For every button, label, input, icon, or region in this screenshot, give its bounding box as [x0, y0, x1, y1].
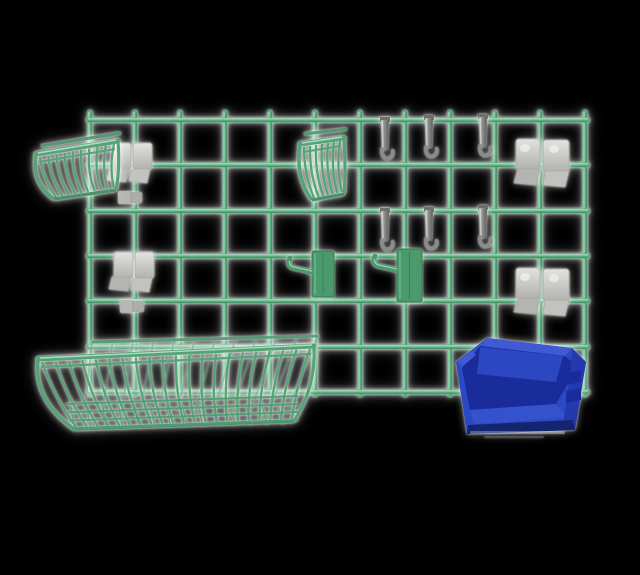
grid-bar-shade	[88, 212, 588, 213]
grid-bar-highlight	[88, 118, 588, 119]
hook-highlight	[481, 209, 482, 235]
clip-flap	[131, 278, 152, 292]
clip-block	[135, 252, 154, 278]
basket-right-cap	[344, 138, 345, 194]
clip-flap	[129, 169, 150, 183]
clip-highlight	[549, 145, 559, 153]
bin-floor-reflection	[470, 431, 565, 434]
clip-block	[114, 252, 133, 278]
product-image-stage	[0, 0, 640, 575]
hook-highlight	[427, 119, 428, 145]
clip-block	[543, 269, 569, 301]
clip-highlight	[520, 144, 530, 152]
clip-highlight	[549, 274, 559, 282]
clip-bit	[130, 192, 142, 203]
grid-bar-shade	[88, 302, 588, 303]
clip-highlight	[520, 273, 530, 281]
hook-highlight	[481, 118, 482, 144]
grid-bar-highlight	[88, 254, 588, 255]
wall-organizer-product-image	[0, 0, 640, 575]
clip-bit	[118, 191, 132, 204]
clip-flap	[543, 300, 569, 316]
bin-floor-reflection	[484, 436, 544, 438]
hook-highlight	[383, 121, 384, 147]
clip-bit	[132, 301, 144, 312]
clip-flap	[109, 277, 131, 291]
grid-bar-shade	[88, 121, 588, 122]
clip-block	[112, 143, 131, 169]
grid-bar-highlight	[88, 209, 588, 210]
clip-flap	[514, 298, 540, 314]
grid-bar-highlight	[88, 299, 588, 300]
clip-flap	[543, 171, 569, 187]
blue-stacking-bin	[456, 338, 586, 438]
hook-highlight	[383, 212, 384, 238]
clip-bit	[120, 300, 134, 313]
clip-block	[516, 139, 540, 169]
hook-highlight	[427, 211, 428, 237]
clip-block	[133, 143, 152, 169]
clip-block	[516, 268, 540, 298]
clip-flap	[514, 169, 540, 185]
clip-block	[543, 140, 569, 172]
grid-bar-shade	[88, 257, 588, 258]
